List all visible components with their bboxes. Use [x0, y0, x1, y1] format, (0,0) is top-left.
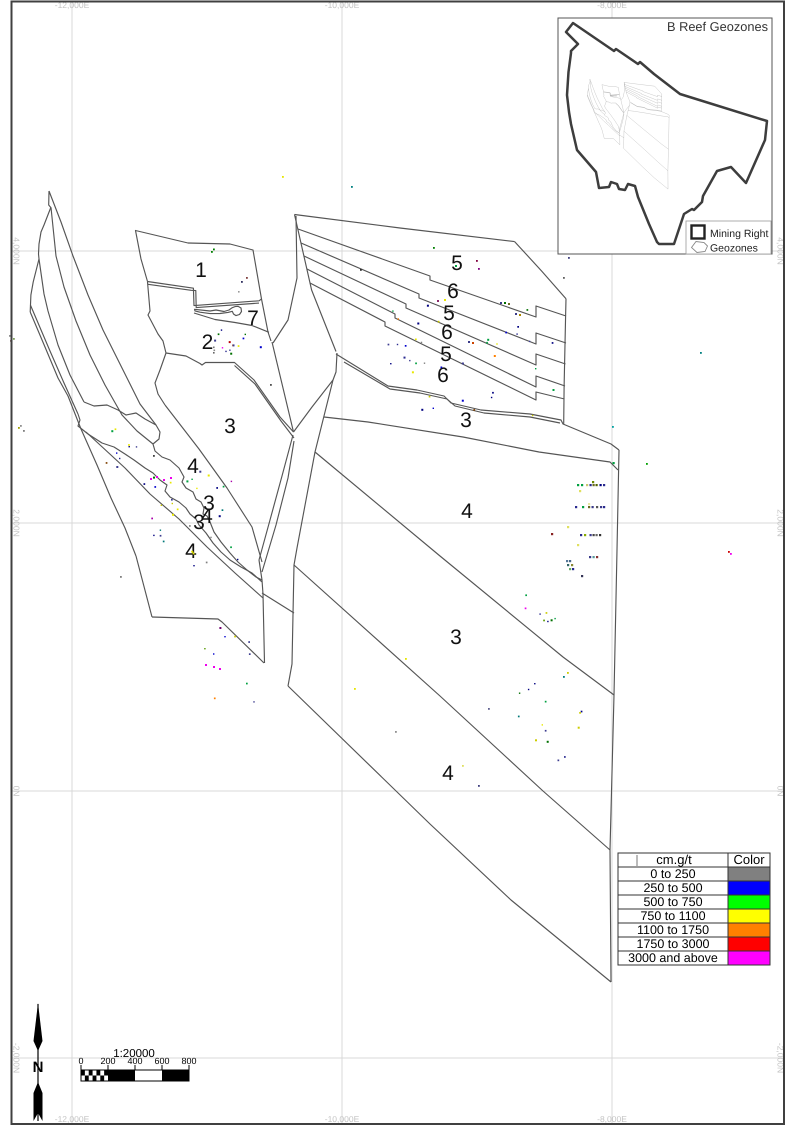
svg-text:4: 4 — [442, 762, 454, 785]
svg-text:3: 3 — [193, 511, 205, 534]
svg-text:3: 3 — [224, 415, 236, 438]
svg-text:B Reef Geozones: B Reef Geozones — [667, 19, 768, 34]
svg-text:-2,000N: -2,000N — [12, 1043, 22, 1073]
svg-text:0 to 250: 0 to 250 — [650, 867, 695, 881]
svg-text:0N: 0N — [12, 786, 22, 797]
svg-text:4: 4 — [461, 500, 473, 523]
svg-text:4: 4 — [185, 540, 197, 563]
svg-text:400: 400 — [127, 1056, 142, 1066]
svg-text:6: 6 — [441, 321, 453, 344]
svg-text:7: 7 — [247, 307, 259, 330]
svg-text:-10,000E: -10,000E — [325, 1114, 360, 1124]
svg-text:3: 3 — [460, 409, 472, 432]
svg-text:-12,000E: -12,000E — [55, 1114, 90, 1124]
svg-text:1: 1 — [195, 259, 207, 282]
svg-text:Color: Color — [733, 852, 765, 867]
svg-text:6: 6 — [437, 364, 449, 387]
svg-text:1750 to 3000: 1750 to 3000 — [637, 937, 710, 951]
svg-text:250 to 500: 250 to 500 — [643, 881, 702, 895]
svg-text:750 to 1100: 750 to 1100 — [640, 909, 705, 923]
svg-text:Mining Right: Mining Right — [710, 228, 768, 240]
svg-text:0: 0 — [78, 1056, 83, 1066]
svg-text:3: 3 — [450, 626, 462, 649]
svg-text:3000 and above: 3000 and above — [628, 951, 718, 965]
svg-text:2: 2 — [202, 331, 214, 354]
svg-text:1100 to 1750: 1100 to 1750 — [637, 923, 709, 937]
svg-text:500 to 750: 500 to 750 — [643, 895, 702, 909]
svg-text:600: 600 — [154, 1056, 169, 1066]
svg-text:200: 200 — [100, 1056, 115, 1066]
svg-text:2,000N: 2,000N — [12, 509, 22, 536]
svg-text:5: 5 — [451, 252, 463, 275]
svg-text:cm.g/t: cm.g/t — [656, 852, 692, 867]
svg-text:6: 6 — [447, 280, 459, 303]
svg-text:4: 4 — [187, 455, 199, 478]
svg-text:5: 5 — [440, 343, 452, 366]
svg-text:4,000N: 4,000N — [12, 237, 22, 264]
svg-text:N: N — [33, 1059, 44, 1076]
svg-text:800: 800 — [181, 1056, 196, 1066]
svg-text:Geozones: Geozones — [710, 243, 758, 255]
svg-text:-8,000E: -8,000E — [597, 1114, 627, 1124]
